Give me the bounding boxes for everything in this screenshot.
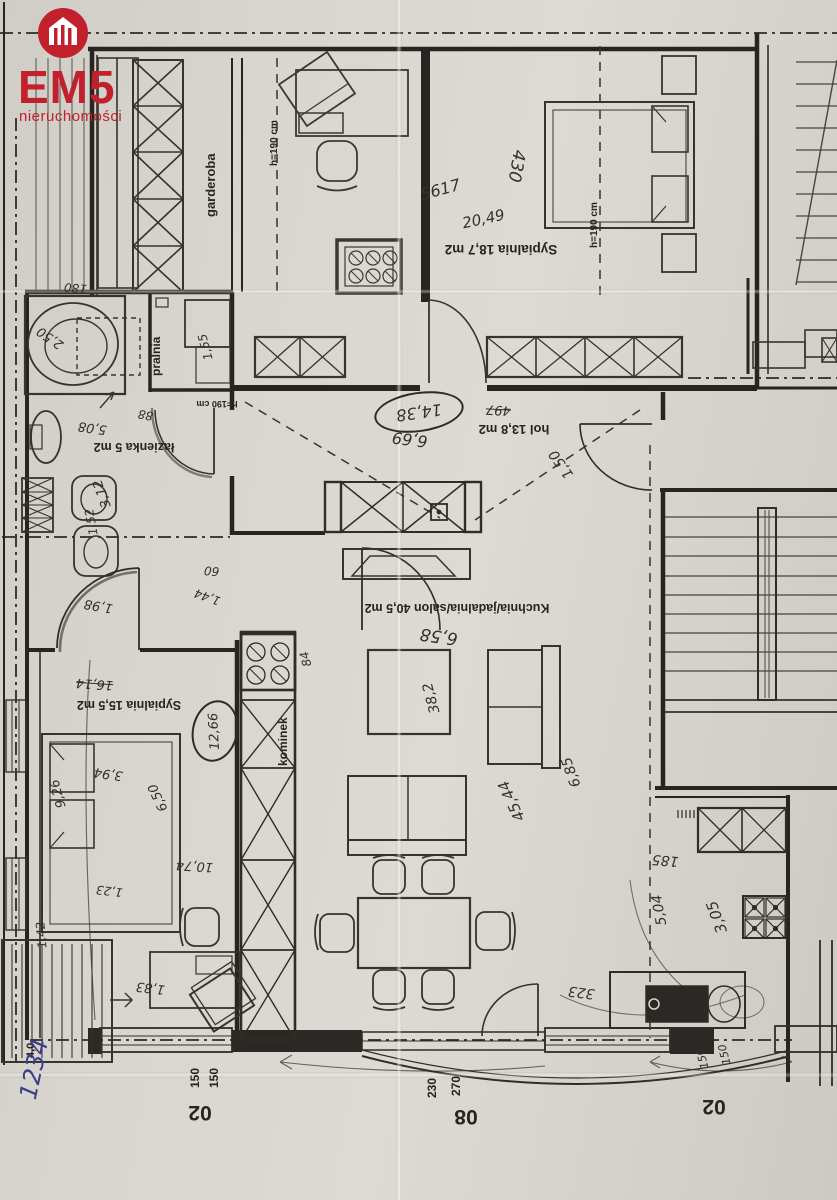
logo-tagline: nieruchomości [19,108,162,125]
room-label-living: Kuchnia/jadalnia/salon 40,5 m2 [358,601,556,615]
hw-door-60: 60 [203,563,219,578]
room-label-hall: hol 13,8 m2 [466,422,562,437]
hw-bath-180: 180 [63,280,87,296]
laundry-room [156,298,230,383]
hw-bedroom2-1614: 16,14 [76,675,114,693]
height-note-bedroom1: h=190 cm [590,164,600,248]
hw-bedroom2-142: 1,42 [33,921,49,949]
floor-plan-photo: EM5 nieruchomości garderoba Sypialnia 18… [0,0,837,1200]
height-note-laundry: h=190 cm [188,399,246,409]
dim-left-window-150b: 150 [208,1050,220,1088]
neighbor-utility [753,330,837,368]
height-note-garderoba: h=190 cm [270,88,280,166]
floor-plan-drawing [0,0,837,1200]
room-label-laundry: pralnia [150,314,162,376]
room-label-bedroom1: Sypialnia 18,7 m2 [434,242,568,257]
neighbor-stairs-hatch [796,60,837,285]
logo-badge [38,8,88,58]
desk-area-top [279,52,408,293]
dim-left-window-150a: 150 [189,1050,201,1088]
hw-hall-497: 497 [486,401,512,417]
room-label-bathroom: łazienka 5 m2 [84,440,184,454]
window-code-center: 08 [446,1104,486,1128]
room-label-fireplace: kominek [277,702,289,766]
hw-bedroom2-1074: 10,74 [176,857,214,875]
dim-balcony-door-270: 270 [450,1056,462,1096]
left-balcony [2,940,132,1062]
hw-hall-1438: 14,38 [395,399,443,424]
corridor-doors [57,548,440,652]
room-label-garderoba: garderoba [204,122,217,217]
house-icon [46,14,80,53]
hw-kitchen-185: 185 [651,851,679,869]
hw-kitchen-323: 323 [567,982,595,1001]
room-label-bedroom2: Sypialnia 15,5 m2 [72,698,186,712]
living-room-furniture [315,549,560,1036]
window-code-left: 02 [180,1100,220,1124]
hw-bedroom2-1266: 12,66 [207,712,224,750]
stairwell [665,508,837,712]
agency-logo: EM5 nieruchomości [12,8,162,125]
logo-brand-text: EM5 [18,64,162,110]
hw-bath-88: 88 [137,407,154,423]
window-code-right: 02 [694,1094,734,1118]
fireplace-column [241,632,295,1040]
dim-balcony-door-230: 230 [426,1058,438,1098]
